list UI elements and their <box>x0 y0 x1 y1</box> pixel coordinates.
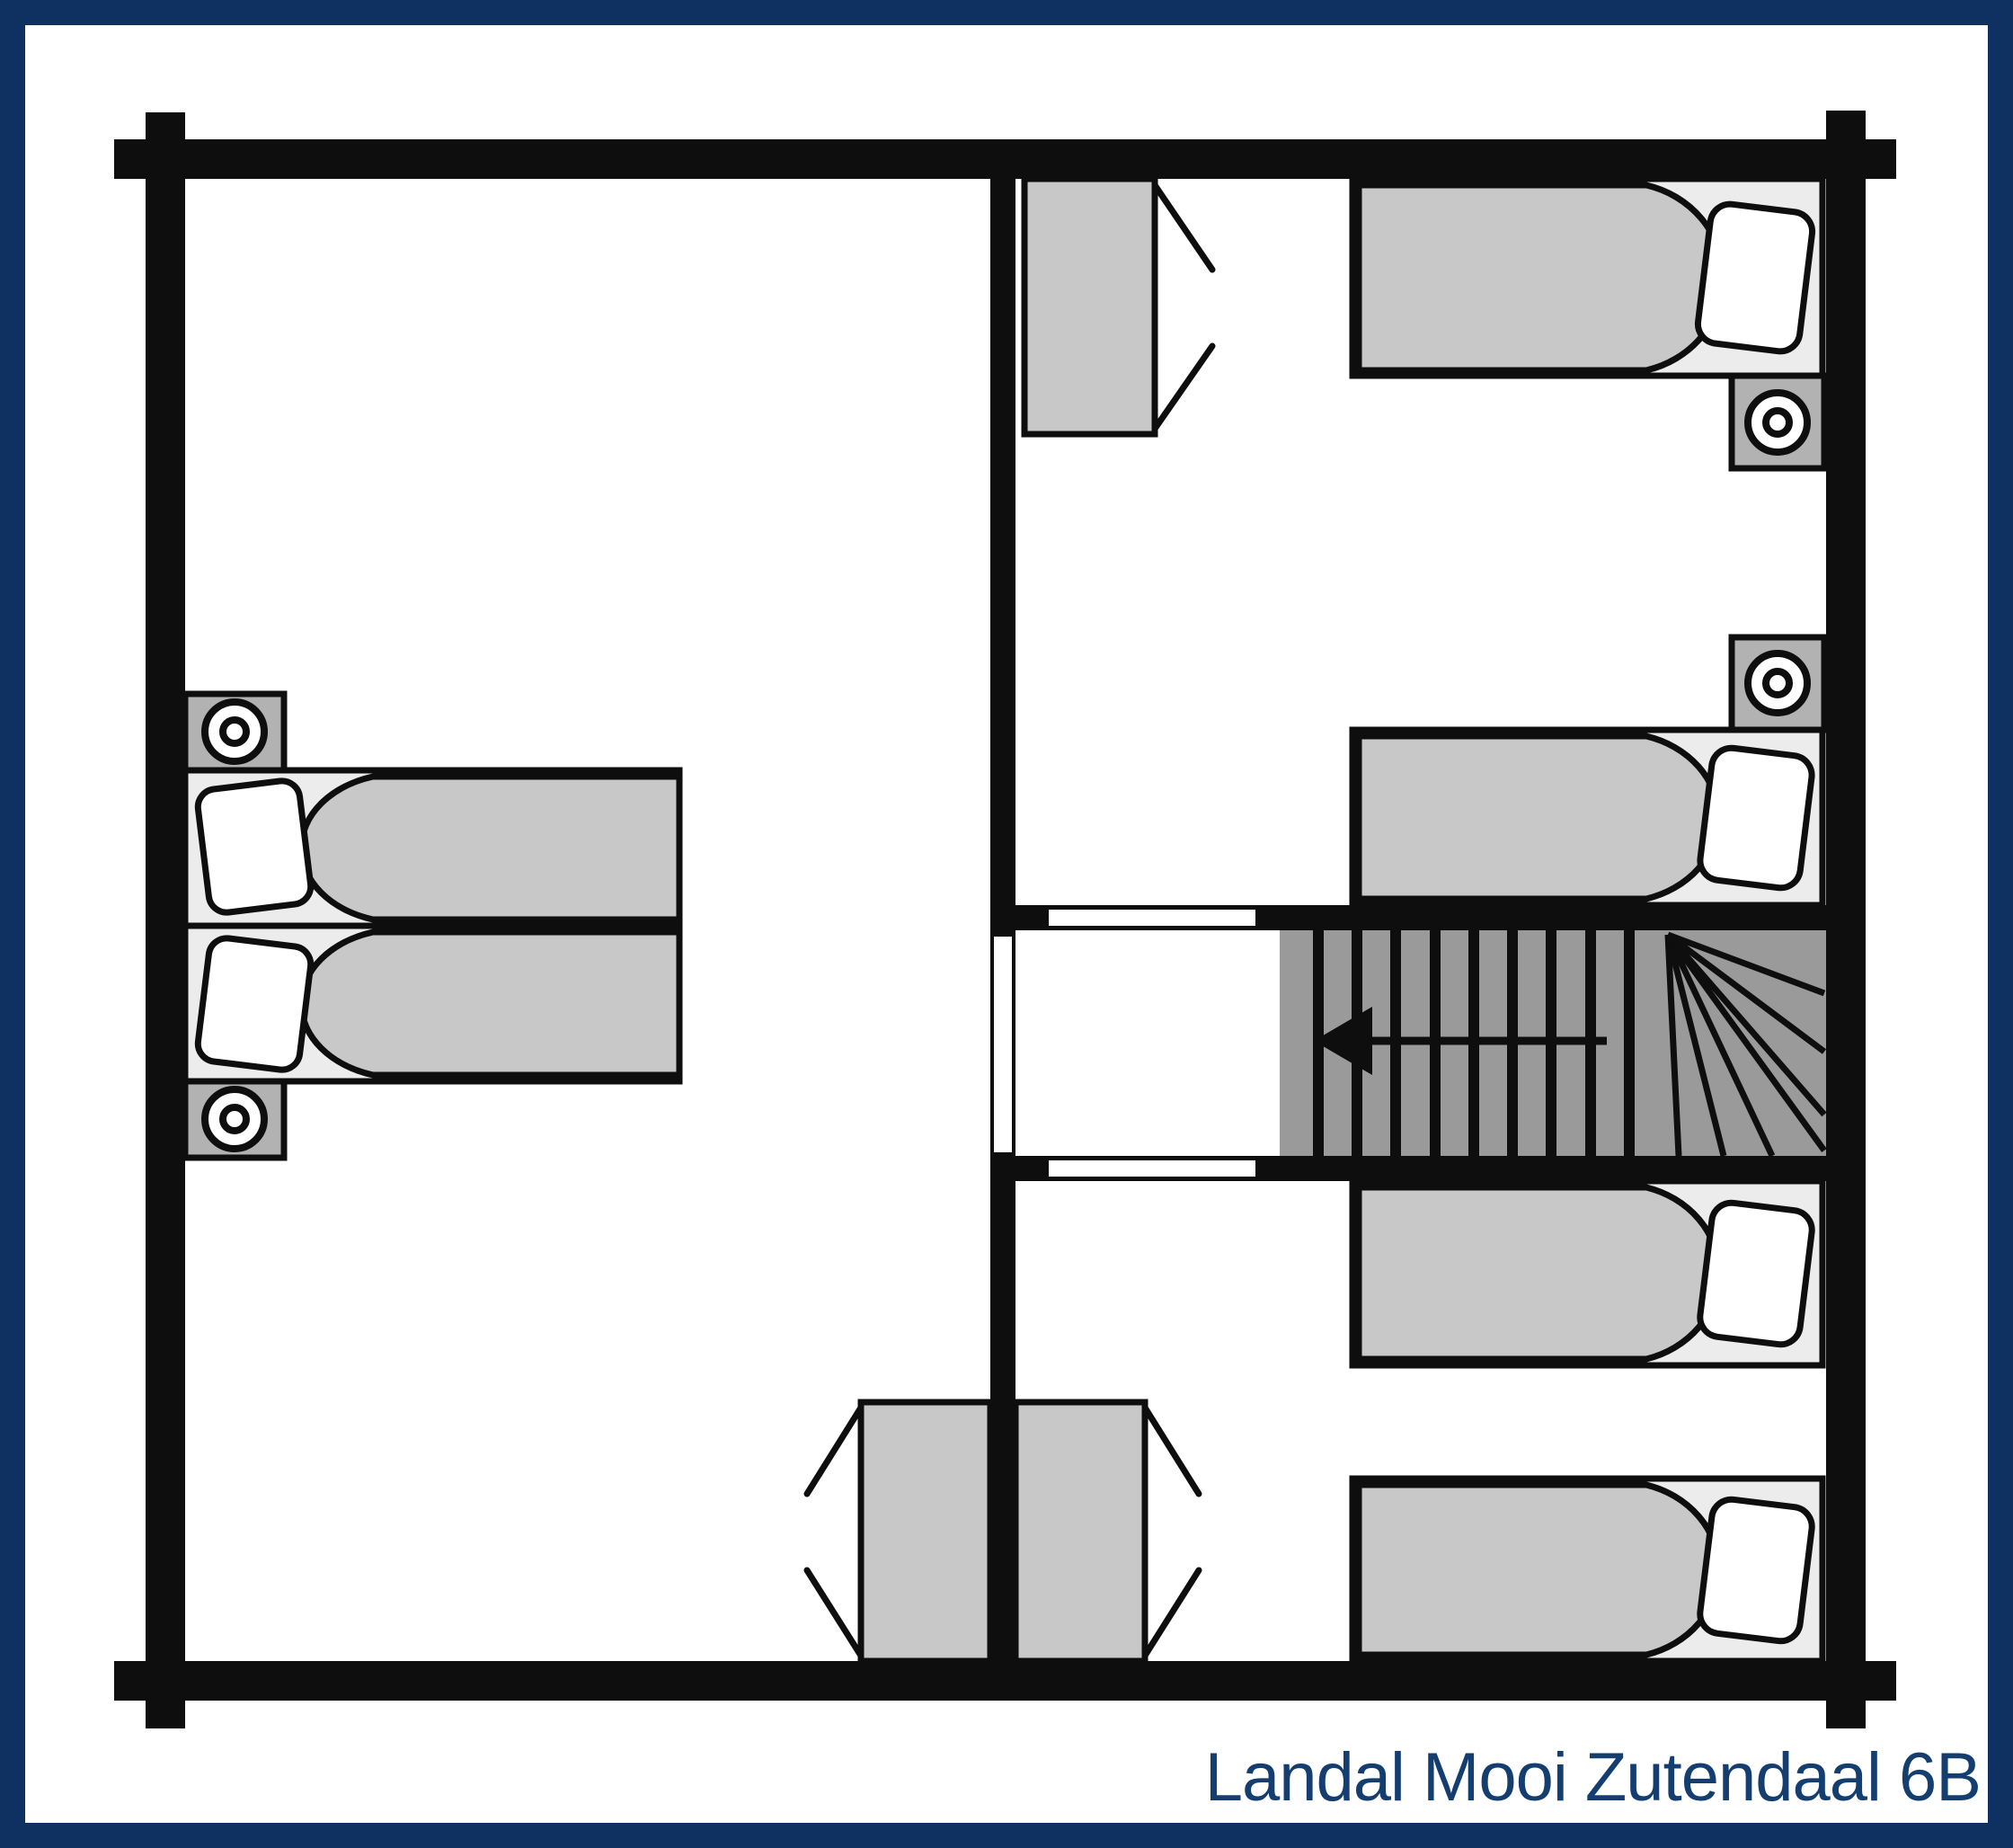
wall-bottom <box>114 1661 1896 1701</box>
bed-left-lower <box>185 926 679 1081</box>
bed-right-4 <box>1352 1479 1822 1661</box>
bed-left-upper <box>185 770 679 926</box>
wardrobe-top-right-room <box>1024 179 1212 434</box>
wall-top <box>114 139 1896 179</box>
wall-center-partition <box>990 179 1015 1661</box>
left-bedroom <box>185 694 990 1661</box>
bed-right-3 <box>1352 1181 1822 1365</box>
bed-right-2 <box>1352 730 1822 905</box>
door-opening-bottom-room <box>1049 1160 1255 1177</box>
door-opening-top-room <box>1049 910 1255 926</box>
floor-plan-drawing <box>0 0 2013 1848</box>
plan-title: Landal Mooi Zutendaal 6B <box>1205 1744 1981 1812</box>
wardrobe-bottom-right-room <box>1015 1402 1199 1661</box>
lamp-icon <box>205 1089 264 1149</box>
wall-left <box>146 112 185 1728</box>
lamp-icon <box>1748 653 1807 713</box>
top-right-bedroom <box>1024 179 1824 905</box>
bed-right-1 <box>1352 179 1822 376</box>
door-opening-left-room <box>994 937 1012 1152</box>
lamp-icon <box>1748 393 1807 452</box>
floor-plan-image: Landal Mooi Zutendaal 6B <box>0 0 2013 1848</box>
wall-right <box>1826 111 1866 1728</box>
wardrobe-left-room <box>807 1402 990 1661</box>
lamp-icon <box>205 702 264 761</box>
bottom-right-bedroom <box>1015 1181 1822 1661</box>
staircase <box>1280 930 1826 1156</box>
